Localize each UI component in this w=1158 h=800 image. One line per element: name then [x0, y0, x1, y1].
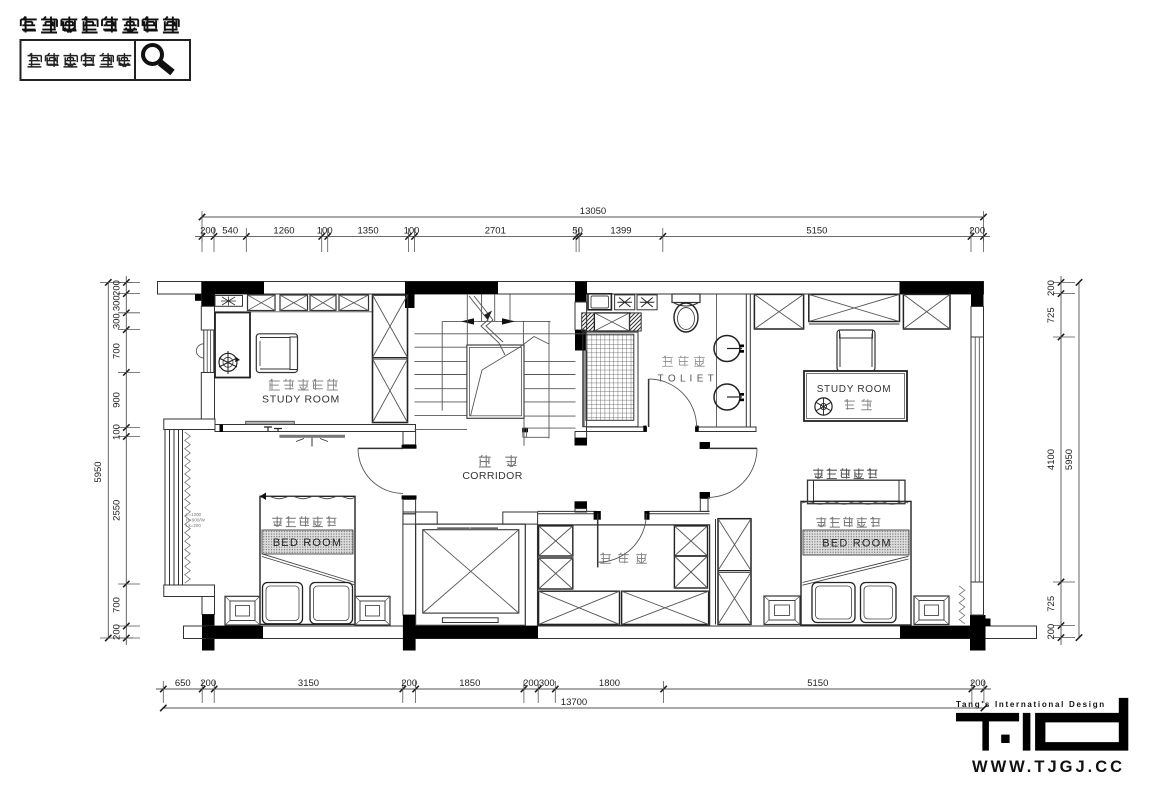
svg-text:1350: 1350 [358, 226, 379, 237]
svg-text:900: 900 [111, 392, 122, 408]
svg-text:STUDY ROOM: STUDY ROOM [262, 394, 340, 406]
svg-text:5150: 5150 [807, 678, 828, 689]
svg-text:1260: 1260 [273, 226, 294, 237]
svg-text:4100: 4100 [1046, 449, 1057, 470]
svg-text:100: 100 [317, 226, 333, 237]
svg-text:1800: 1800 [599, 678, 620, 689]
svg-text:100: 100 [112, 424, 123, 440]
svg-text:200: 200 [200, 226, 216, 237]
svg-text:2701: 2701 [485, 226, 506, 237]
svg-text:Lk=200: Lk=200 [186, 523, 201, 528]
svg-text:5950: 5950 [1064, 449, 1075, 470]
svg-text:T O L I E T: T O L I E T [658, 374, 715, 385]
svg-text:725: 725 [1046, 307, 1057, 323]
svg-text:200: 200 [1046, 280, 1057, 296]
svg-text:650: 650 [175, 678, 191, 689]
svg-text:50: 50 [572, 226, 583, 237]
svg-text:13050: 13050 [580, 206, 606, 217]
svg-text:300: 300 [112, 295, 123, 311]
svg-text:1399: 1399 [610, 226, 631, 237]
svg-text:200: 200 [200, 678, 216, 689]
svg-text:3150: 3150 [298, 678, 319, 689]
svg-text:200: 200 [1046, 624, 1057, 640]
svg-text:300: 300 [112, 313, 123, 329]
svg-text:Tang's International Design: Tang's International Design [956, 700, 1106, 709]
svg-text:200: 200 [112, 280, 123, 296]
svg-text:725: 725 [1046, 596, 1057, 612]
svg-text:300: 300 [539, 678, 555, 689]
svg-text:5950: 5950 [93, 461, 104, 482]
svg-text:100: 100 [404, 226, 420, 237]
svg-text:200: 200 [401, 678, 417, 689]
svg-text:540: 540 [222, 226, 238, 237]
svg-text:200: 200 [969, 226, 985, 237]
svg-text:1850: 1850 [459, 678, 480, 689]
svg-text:CORRIDOR: CORRIDOR [462, 470, 522, 482]
svg-text:200: 200 [112, 624, 123, 640]
svg-text:BED ROOM: BED ROOM [822, 538, 892, 550]
svg-text:STUDY ROOM: STUDY ROOM [817, 384, 892, 395]
svg-text:200: 200 [523, 678, 539, 689]
svg-text:BED ROOM: BED ROOM [273, 537, 343, 549]
svg-text:700: 700 [112, 343, 123, 359]
svg-text:WWW.TJGJ.CC: WWW.TJGJ.CC [972, 758, 1125, 776]
svg-text:H=900/W: H=900/W [186, 518, 206, 523]
svg-text:L=1200: L=1200 [186, 512, 202, 517]
svg-text:13700: 13700 [561, 697, 587, 708]
svg-text:200: 200 [970, 678, 986, 689]
svg-text:2550: 2550 [111, 500, 122, 521]
svg-text:700: 700 [112, 597, 123, 613]
svg-text:5150: 5150 [806, 226, 827, 237]
